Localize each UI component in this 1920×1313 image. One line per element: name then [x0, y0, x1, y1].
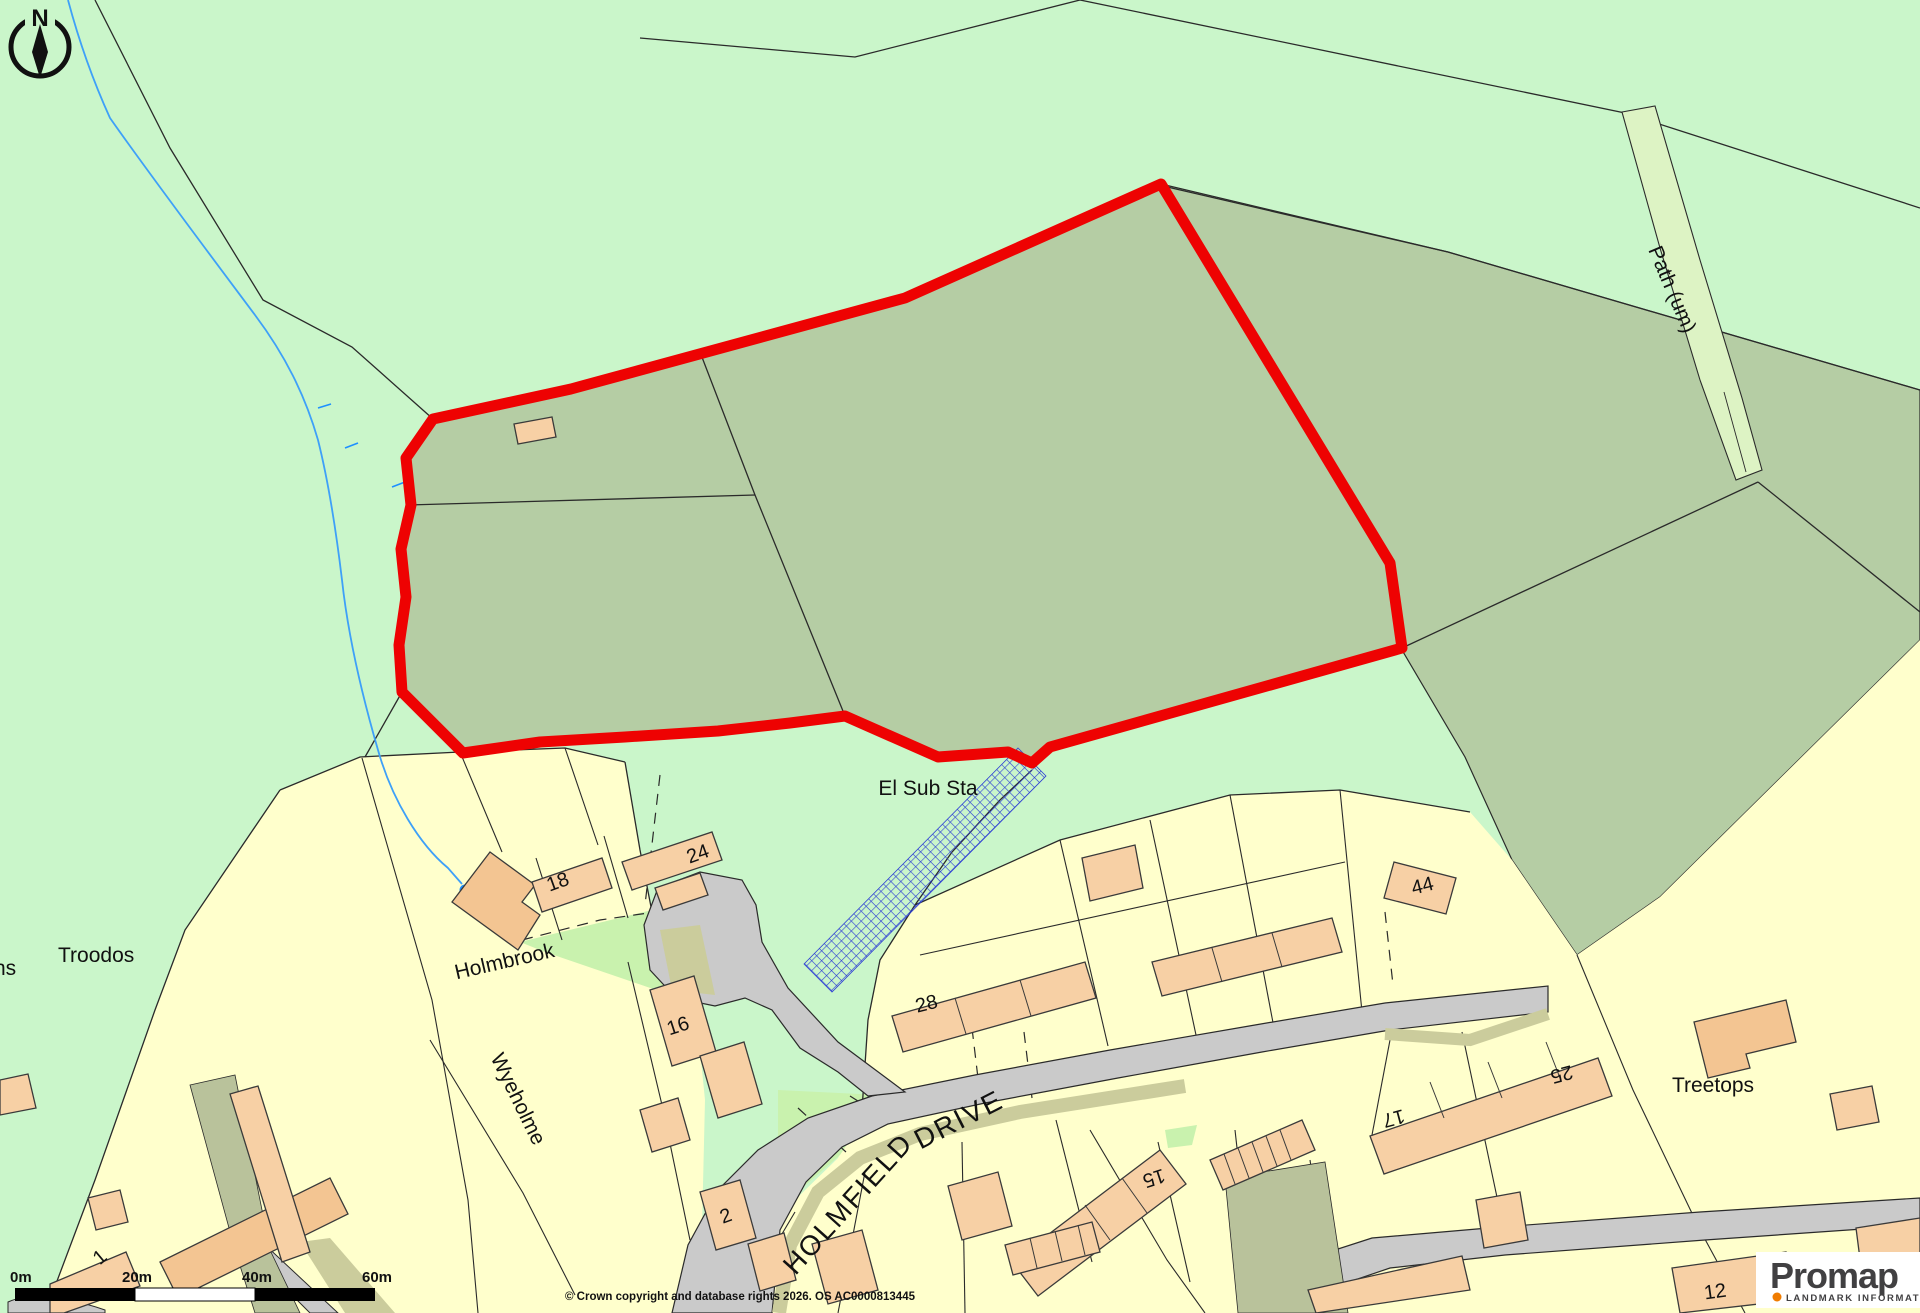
logo-orange-dot-icon: [1773, 1293, 1782, 1302]
copyright-notice: © Crown copyright and database rights 20…: [565, 1291, 916, 1303]
label-treetops: Treetops: [1672, 1074, 1754, 1097]
promap-logo-text: Promap: [1770, 1255, 1898, 1296]
label-troodos: Troodos: [58, 944, 134, 967]
map-canvas[interactable]: El Sub Sta Troodos ns Holmbrook Wyeholme…: [0, 0, 1920, 1313]
scale-tick-60m: 60m: [362, 1269, 392, 1286]
scale-tick-20m: 20m: [122, 1269, 152, 1286]
promap-logo-tagline: LANDMARK INFORMATION: [1786, 1293, 1920, 1304]
map-viewport: El Sub Sta Troodos ns Holmbrook Wyeholme…: [0, 0, 1920, 1313]
scale-tick-0m: 0m: [10, 1269, 32, 1286]
promap-logo[interactable]: Promap LANDMARK INFORMATION: [1756, 1252, 1920, 1308]
label-left-fragment: ns: [0, 957, 16, 980]
compass-north-label: N: [31, 5, 48, 32]
label-el-sub-sta: El Sub Sta: [878, 777, 978, 800]
scale-tick-40m: 40m: [242, 1269, 272, 1286]
house-number-12: 12: [1703, 1280, 1728, 1305]
